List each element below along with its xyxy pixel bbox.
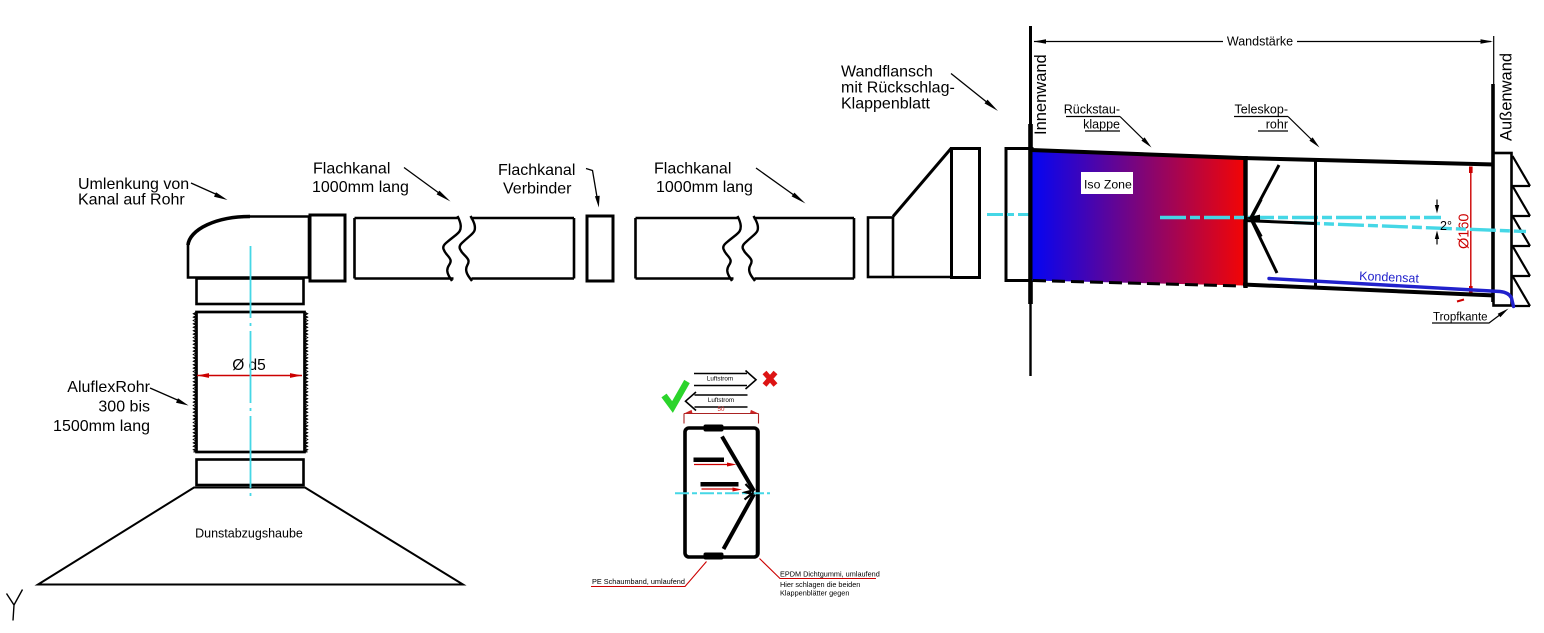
svg-text:Kondensat: Kondensat — [1359, 269, 1420, 286]
svg-text:mit Rückschlag-: mit Rückschlag- — [841, 80, 955, 97]
svg-text:Luftstrom: Luftstrom — [707, 376, 733, 383]
svg-text:Wandstärke: Wandstärke — [1227, 35, 1293, 49]
svg-text:Flachkanal: Flachkanal — [654, 161, 731, 178]
svg-text:klappe: klappe — [1083, 118, 1120, 132]
svg-text:Klappenblatt: Klappenblatt — [841, 96, 931, 113]
svg-text:2°: 2° — [1440, 219, 1452, 233]
svg-text:Ø d5: Ø d5 — [232, 357, 266, 374]
svg-text:Flachkanal: Flachkanal — [313, 161, 390, 178]
svg-text:Dunstabzugshaube: Dunstabzugshaube — [195, 527, 303, 541]
svg-text:Innenwand: Innenwand — [1032, 54, 1050, 135]
svg-text:Umlenkung von: Umlenkung von — [78, 176, 189, 193]
svg-text:EPDM Dichtgummi, umlaufend: EPDM Dichtgummi, umlaufend — [780, 570, 880, 579]
svg-text:Verbinder: Verbinder — [503, 181, 572, 198]
svg-text:1000mm lang: 1000mm lang — [312, 179, 409, 196]
svg-text:50: 50 — [718, 406, 725, 413]
svg-text:Iso Zone: Iso Zone — [1084, 178, 1132, 192]
svg-text:Klappenblätter gegen: Klappenblätter gegen — [780, 589, 849, 598]
svg-text:300 bis: 300 bis — [98, 399, 150, 416]
svg-text:Wandflansch: Wandflansch — [841, 64, 933, 81]
svg-text:Luftstrom: Luftstrom — [708, 397, 734, 404]
svg-text:Teleskop-: Teleskop- — [1235, 103, 1289, 117]
svg-text:Rückstau-: Rückstau- — [1064, 103, 1120, 117]
svg-text:Außenwand: Außenwand — [1498, 53, 1516, 141]
svg-text:Flachkanal: Flachkanal — [498, 162, 575, 179]
svg-text:Ø160: Ø160 — [1457, 214, 1473, 249]
svg-text:Kanal auf Rohr: Kanal auf Rohr — [78, 192, 185, 209]
svg-text:1500mm lang: 1500mm lang — [53, 418, 150, 435]
svg-text:1000mm lang: 1000mm lang — [656, 179, 753, 196]
svg-text:AluflexRohr: AluflexRohr — [67, 379, 150, 396]
svg-text:Tropfkante: Tropfkante — [1433, 312, 1488, 324]
svg-text:PE Schaumband, umlaufend: PE Schaumband, umlaufend — [592, 577, 685, 586]
svg-text:rohr: rohr — [1266, 118, 1288, 132]
